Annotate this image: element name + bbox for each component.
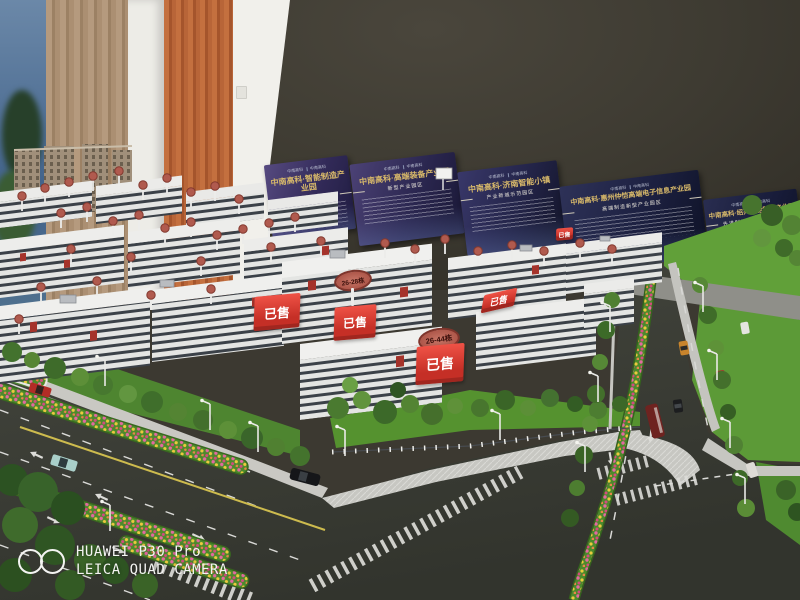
crane-placard <box>436 168 452 179</box>
watermark-camera: LEICA QUAD CAMERA <box>76 562 228 580</box>
sold-sign-small: 已售 <box>556 227 573 241</box>
watermark-device: HUAWEI P30 Pro <box>76 544 228 562</box>
scale-model-scene <box>0 0 800 600</box>
watermark-text: HUAWEI P30 Pro LEICA QUAD CAMERA <box>76 544 228 579</box>
lens-circle-icon <box>40 549 65 574</box>
lens-circles-icon <box>18 549 65 574</box>
photo-architectural-model: 中南高科 中南高科 中南高科·智能制造产业园 高端制造产业园区 中南高科 中南高… <box>0 0 800 600</box>
sold-sign: 已售 <box>253 293 300 331</box>
sold-sign: 已售 <box>415 343 464 385</box>
camera-watermark: HUAWEI P30 Pro LEICA QUAD CAMERA <box>18 544 228 579</box>
car-black-2 <box>673 399 684 413</box>
sold-sign: 已售 <box>333 304 376 341</box>
sign-pole <box>351 288 354 306</box>
